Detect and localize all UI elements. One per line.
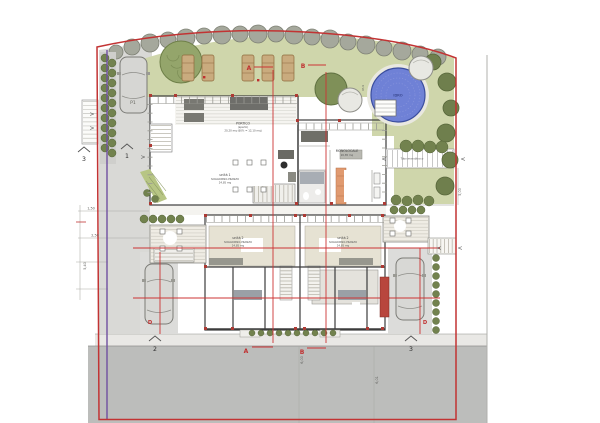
deck-table-right: [394, 220, 406, 232]
section-a-bottom: A: [244, 348, 249, 355]
arrow-right-icon: >: [89, 111, 94, 118]
arrow-left-icon: <: [381, 156, 386, 163]
site-plan-drawing: totale 219,54 mq.: [0, 0, 600, 423]
monolocale-label-2: 20,85 mq: [341, 153, 354, 157]
view-3-right: 3: [409, 346, 413, 353]
unit1-label-2: SOGGIORNO-PRANZO: [211, 177, 239, 181]
dim-pool-spot: 97,9: [361, 85, 365, 91]
plan-svg: A B A B D D P1 IDRO PORTICO (aperto) 20,…: [0, 0, 600, 423]
parking-label: P1: [130, 100, 136, 106]
section-a-top: A: [247, 65, 252, 72]
unit3-label-3: 24,85 mq: [337, 244, 350, 248]
dim-left-1: 1,50: [87, 207, 95, 211]
kitchen-sink: [281, 162, 288, 169]
section-b-bottom: B: [300, 349, 305, 356]
monolocale-label-1: MONOLOCALE: [336, 149, 359, 153]
entry-stairs-left: [150, 124, 172, 152]
dim-left-3: 5,40: [83, 262, 87, 270]
road: [88, 346, 487, 423]
sink: [315, 189, 321, 195]
boulder-2: [409, 56, 433, 80]
unit2-label-1: unità 2: [232, 236, 243, 240]
view-2: 2: [153, 346, 157, 353]
portico-label-2: (aperto): [238, 125, 249, 129]
arrow-right-icon: >: [140, 154, 145, 161]
car-right-driveway: [393, 258, 426, 320]
path-note-label: Tubo monoblocco: [401, 157, 424, 161]
arrow-left-icon: <: [457, 245, 462, 252]
mid-walkway: [150, 205, 386, 215]
dim-road-2: 6,01: [375, 376, 379, 384]
unit1-label-3: 24,85 mq: [219, 181, 232, 185]
section-d-right: D: [423, 320, 428, 326]
portico-bench-2: [184, 113, 204, 122]
portico-label-3: 20,20 mq (60% = 12,10 mq): [224, 129, 261, 133]
section-cut-wall: [380, 277, 389, 317]
section-d-left: D: [148, 320, 153, 326]
sidewalk: [95, 334, 487, 346]
dim-left-2: 2,50: [91, 234, 99, 238]
unit2-label-2: SOGGIORNO-PRANZO: [224, 240, 252, 244]
dim-right-1: 5,00: [458, 188, 462, 196]
dining-table: [228, 166, 274, 186]
car-left-driveway: [142, 264, 175, 324]
view-3-left: 3: [82, 156, 86, 163]
section-b-top: B: [301, 63, 306, 70]
large-tree: [160, 41, 202, 83]
portico-bench-1: [184, 99, 204, 110]
pool-label: IDRO: [393, 94, 402, 98]
dim-road-1: 6,00: [300, 356, 304, 364]
unit1-label-1: unità 1: [219, 173, 230, 177]
arrow-left-icon: <: [460, 156, 465, 163]
boulder-1: [338, 88, 362, 112]
unit2-label-3: 24,85 mq: [232, 244, 245, 248]
wardrobe: [301, 131, 328, 142]
unit3-label-2: SOGGIORNO-PRANZO: [329, 240, 357, 244]
view-1: 1: [125, 153, 129, 160]
interior-stairs-up: [253, 184, 295, 203]
arrow-left-icon: <: [436, 245, 441, 252]
arrow-right-icon: >: [89, 125, 94, 132]
portico-label-1: PORTICO: [236, 122, 251, 126]
toilet: [303, 192, 309, 200]
unit3-label-1: unità 2: [337, 236, 348, 240]
kitchen-counter: [278, 150, 294, 159]
